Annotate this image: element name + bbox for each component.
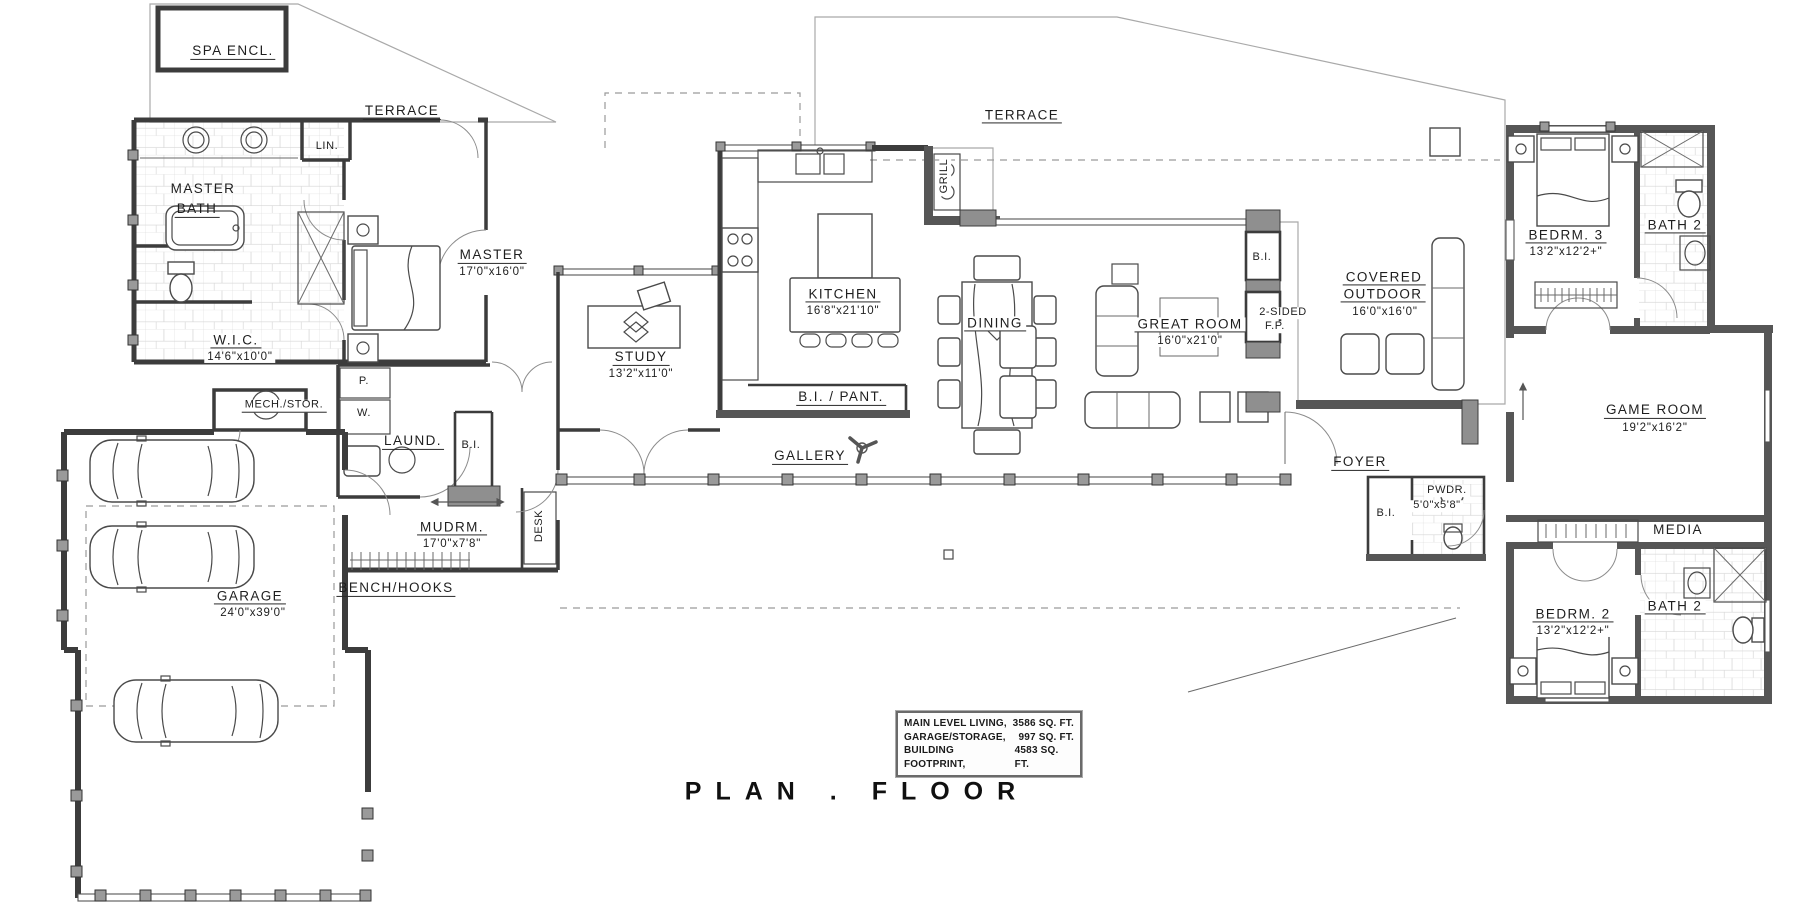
room-label-covered-2: OUTDOOR xyxy=(1341,287,1426,302)
room-label-master-bath-1: MASTER xyxy=(171,182,236,196)
room-dim-wic: 14'6"x10'0" xyxy=(204,351,275,363)
room-dim-powder: 5'0"x5'8" xyxy=(1410,500,1463,512)
label-fireplace-1: 2-SIDED xyxy=(1256,307,1310,319)
label-fireplace-2: F.P. xyxy=(1262,321,1288,333)
label-bi-foyer: B.I. xyxy=(1377,508,1396,520)
room-dim-study: 13'2"x11'0" xyxy=(609,368,674,380)
room-label-foyer: FOYER xyxy=(1331,455,1389,471)
vestibule-double-doors xyxy=(492,362,552,392)
room-label-bath3: BATH 2 xyxy=(1645,218,1706,233)
room-label-laundry: LAUND. xyxy=(382,434,444,450)
area-value: 3586 SQ. FT. xyxy=(1013,717,1074,731)
label-bi-fireplace: B.I. xyxy=(1253,252,1272,264)
room-label-garage: GARAGE xyxy=(214,589,286,604)
label-desk: DESK xyxy=(534,510,546,542)
room-dim-great-room: 16'0"x21'0" xyxy=(1154,335,1225,347)
room-label-terrace-left: TERRACE xyxy=(363,104,441,120)
room-dim-mudroom: 17'0"x7'8" xyxy=(420,538,484,550)
label-bi-mudroom: B.I. xyxy=(462,440,481,452)
table-row: BUILDING FOOTPRINT, 4583 SQ. FT. xyxy=(904,744,1074,771)
area-value: 4583 SQ. FT. xyxy=(1015,744,1074,771)
gallery-window-wall xyxy=(556,438,1291,485)
room-label-lin: LIN. xyxy=(316,141,339,153)
area-summary-table: MAIN LEVEL LIVING, 3586 SQ. FT. GARAGE/S… xyxy=(896,711,1082,777)
plan-title: PLAN . FLOOR xyxy=(685,778,1029,807)
area-label: GARAGE/STORAGE, xyxy=(904,731,1006,745)
label-grill: GRILL xyxy=(939,156,951,197)
table-row: MAIN LEVEL LIVING, 3586 SQ. FT. xyxy=(904,717,1074,731)
area-label: MAIN LEVEL LIVING, xyxy=(904,717,1007,731)
room-dim-covered: 16'0"x16'0" xyxy=(1349,306,1420,318)
room-dim-bedroom2: 13'2"x12'2+" xyxy=(1534,625,1613,637)
area-label: BUILDING FOOTPRINT, xyxy=(904,744,1015,771)
room-label-master-bath-2: BATH xyxy=(175,202,220,218)
room-label-wic: W.I.C. xyxy=(210,333,261,348)
room-label-dining: DINING xyxy=(964,316,1026,331)
room-label-bath2: BATH 2 xyxy=(1645,599,1706,614)
room-label-media: MEDIA xyxy=(1653,523,1703,537)
room-label-bi-pantry: B.I. / PANT. xyxy=(796,390,886,406)
room-label-powder: PWDR. xyxy=(1424,485,1470,497)
room-label-study: STUDY xyxy=(613,350,670,366)
room-dim-master: 17'0"x16'0" xyxy=(459,266,524,278)
room-label-mech-stor: MECH./STOR. xyxy=(242,400,327,413)
dining-furniture xyxy=(938,256,1056,454)
spa-enclosure xyxy=(158,8,286,70)
room-label-covered-1: COVERED xyxy=(1343,270,1426,285)
table-row: GARAGE/STORAGE, 997 SQ. FT. xyxy=(904,731,1074,745)
label-pantry-p: P. xyxy=(359,376,369,388)
room-dim-bedroom3: 13'2"x12'2+" xyxy=(1527,246,1606,258)
area-value: 997 SQ. FT. xyxy=(1018,731,1074,745)
room-label-kitchen: KITCHEN xyxy=(805,287,880,302)
room-label-terrace-right: TERRACE xyxy=(982,108,1062,123)
two-sided-fireplace xyxy=(1246,210,1280,358)
room-label-great-room: GREAT ROOM xyxy=(1134,317,1245,332)
room-dim-garage: 24'0"x39'0" xyxy=(217,607,288,619)
ceiling-fan-icon xyxy=(850,438,876,462)
room-label-bedroom2: BEDRM. 2 xyxy=(1533,607,1614,622)
floor-plan-page: SPA ENCL. TERRACE LIN. MASTER BATH W.I.C… xyxy=(0,0,1800,917)
room-dim-game-room: 19'2"x16'2" xyxy=(1622,422,1687,434)
room-dim-kitchen: 16'8"x21'10" xyxy=(804,305,883,317)
room-label-mudroom: MUDRM. xyxy=(417,520,487,535)
label-washer-w: W. xyxy=(357,408,371,420)
room-label-bedroom3: BEDRM. 3 xyxy=(1526,228,1607,243)
room-label-gallery: GALLERY xyxy=(772,449,848,465)
room-label-game-room: GAME ROOM xyxy=(1604,403,1706,419)
room-label-master: MASTER xyxy=(458,248,527,264)
label-bench-hooks: BENCH/HOOKS xyxy=(336,581,455,597)
room-label-spa: SPA ENCL. xyxy=(190,44,275,60)
master-bed-furniture xyxy=(348,216,440,362)
